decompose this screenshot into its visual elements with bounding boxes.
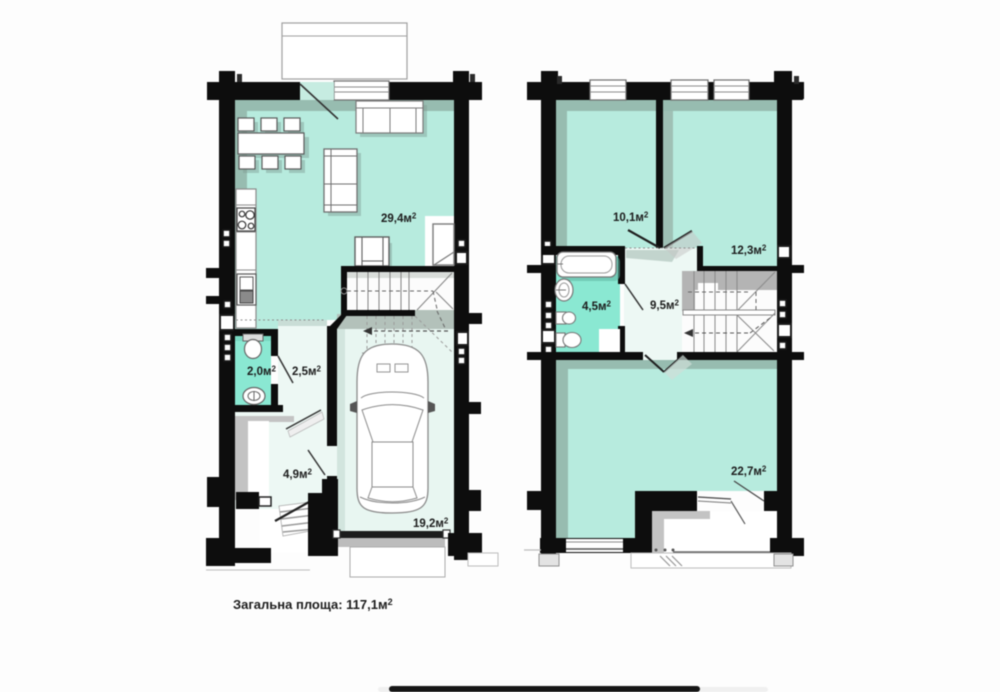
svg-text:29,4м2: 29,4м2	[381, 212, 417, 226]
svg-text:22,7м2: 22,7м2	[731, 465, 767, 479]
svg-text:Загальна площа: 117,1м2: Загальна площа: 117,1м2	[233, 597, 393, 612]
svg-text:2,0м2: 2,0м2	[247, 365, 277, 379]
svg-text:19,2м2: 19,2м2	[413, 517, 449, 531]
svg-text:12,3м2: 12,3м2	[731, 244, 767, 258]
svg-text:10,1м2: 10,1м2	[613, 211, 649, 225]
